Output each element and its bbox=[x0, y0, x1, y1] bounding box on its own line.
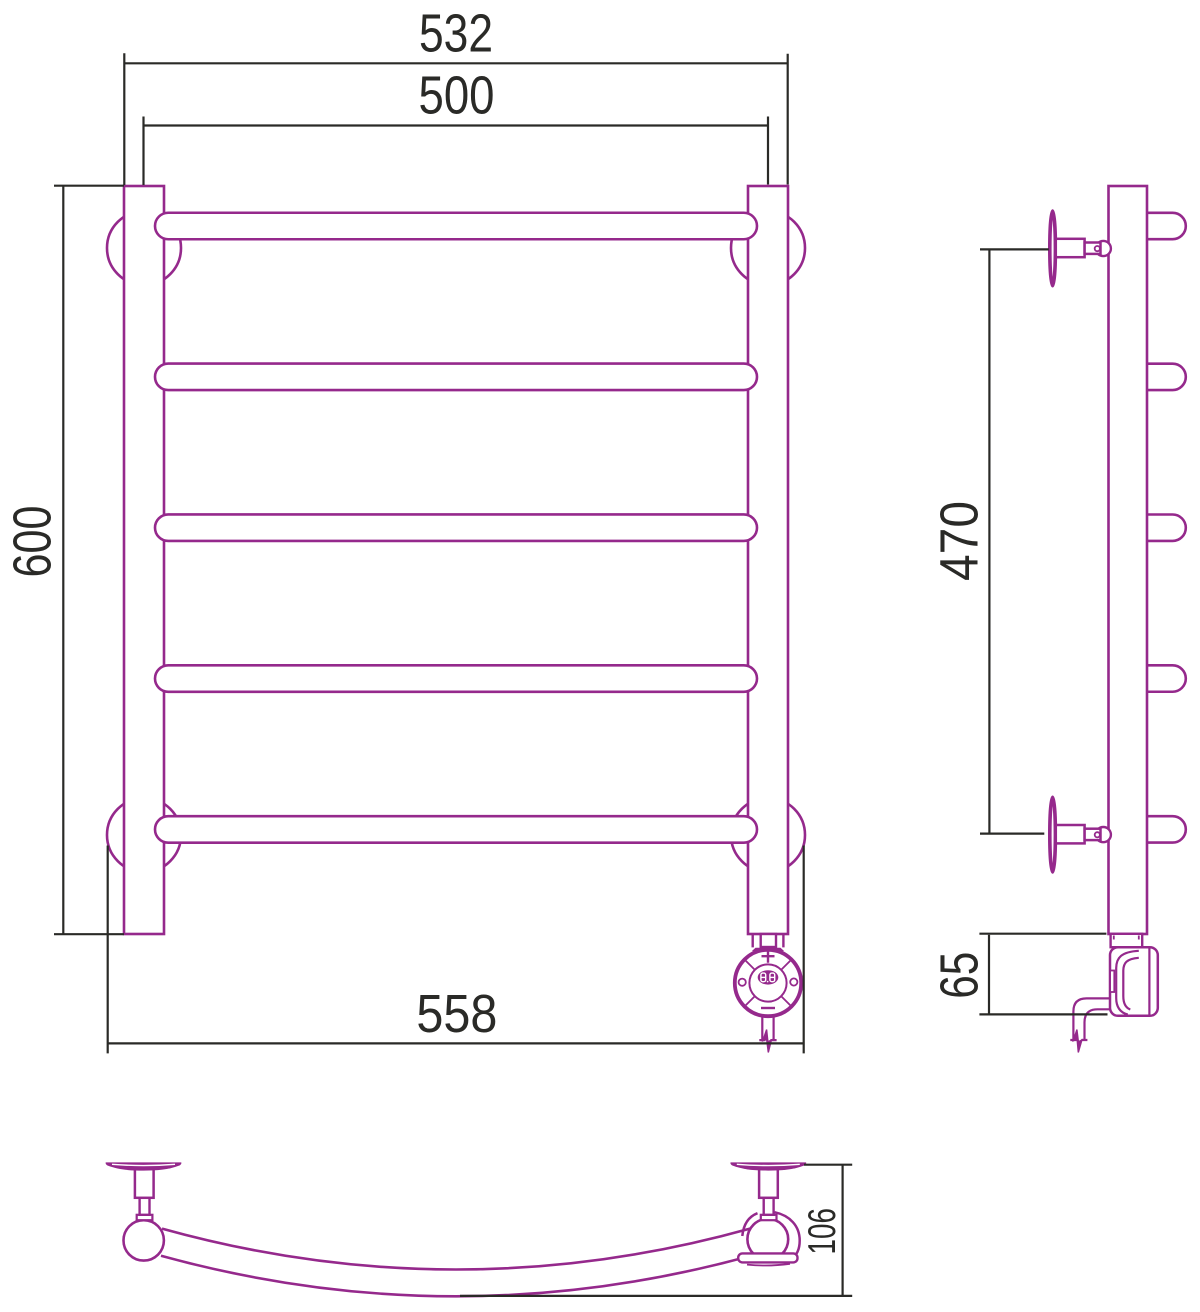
svg-text:532: 532 bbox=[419, 3, 493, 63]
svg-text:106: 106 bbox=[801, 1208, 844, 1255]
svg-text:65: 65 bbox=[930, 952, 990, 999]
svg-text:558: 558 bbox=[416, 984, 497, 1044]
svg-text:600: 600 bbox=[3, 506, 63, 578]
svg-text:470: 470 bbox=[929, 501, 989, 581]
svg-text:500: 500 bbox=[419, 65, 495, 125]
